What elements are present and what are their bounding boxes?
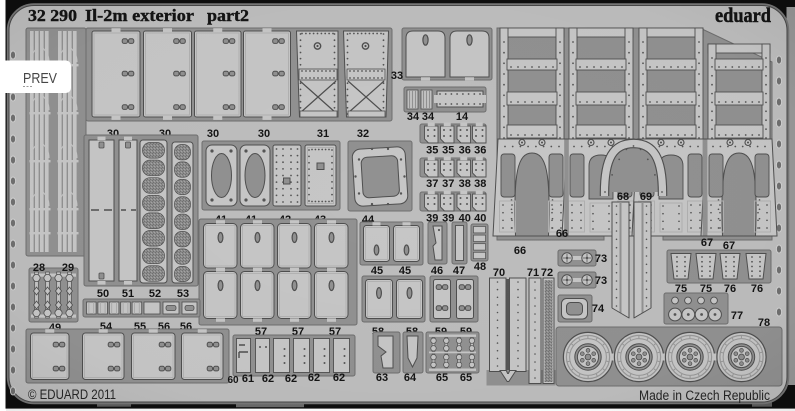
svg-text:PREV: PREV [23, 70, 57, 87]
